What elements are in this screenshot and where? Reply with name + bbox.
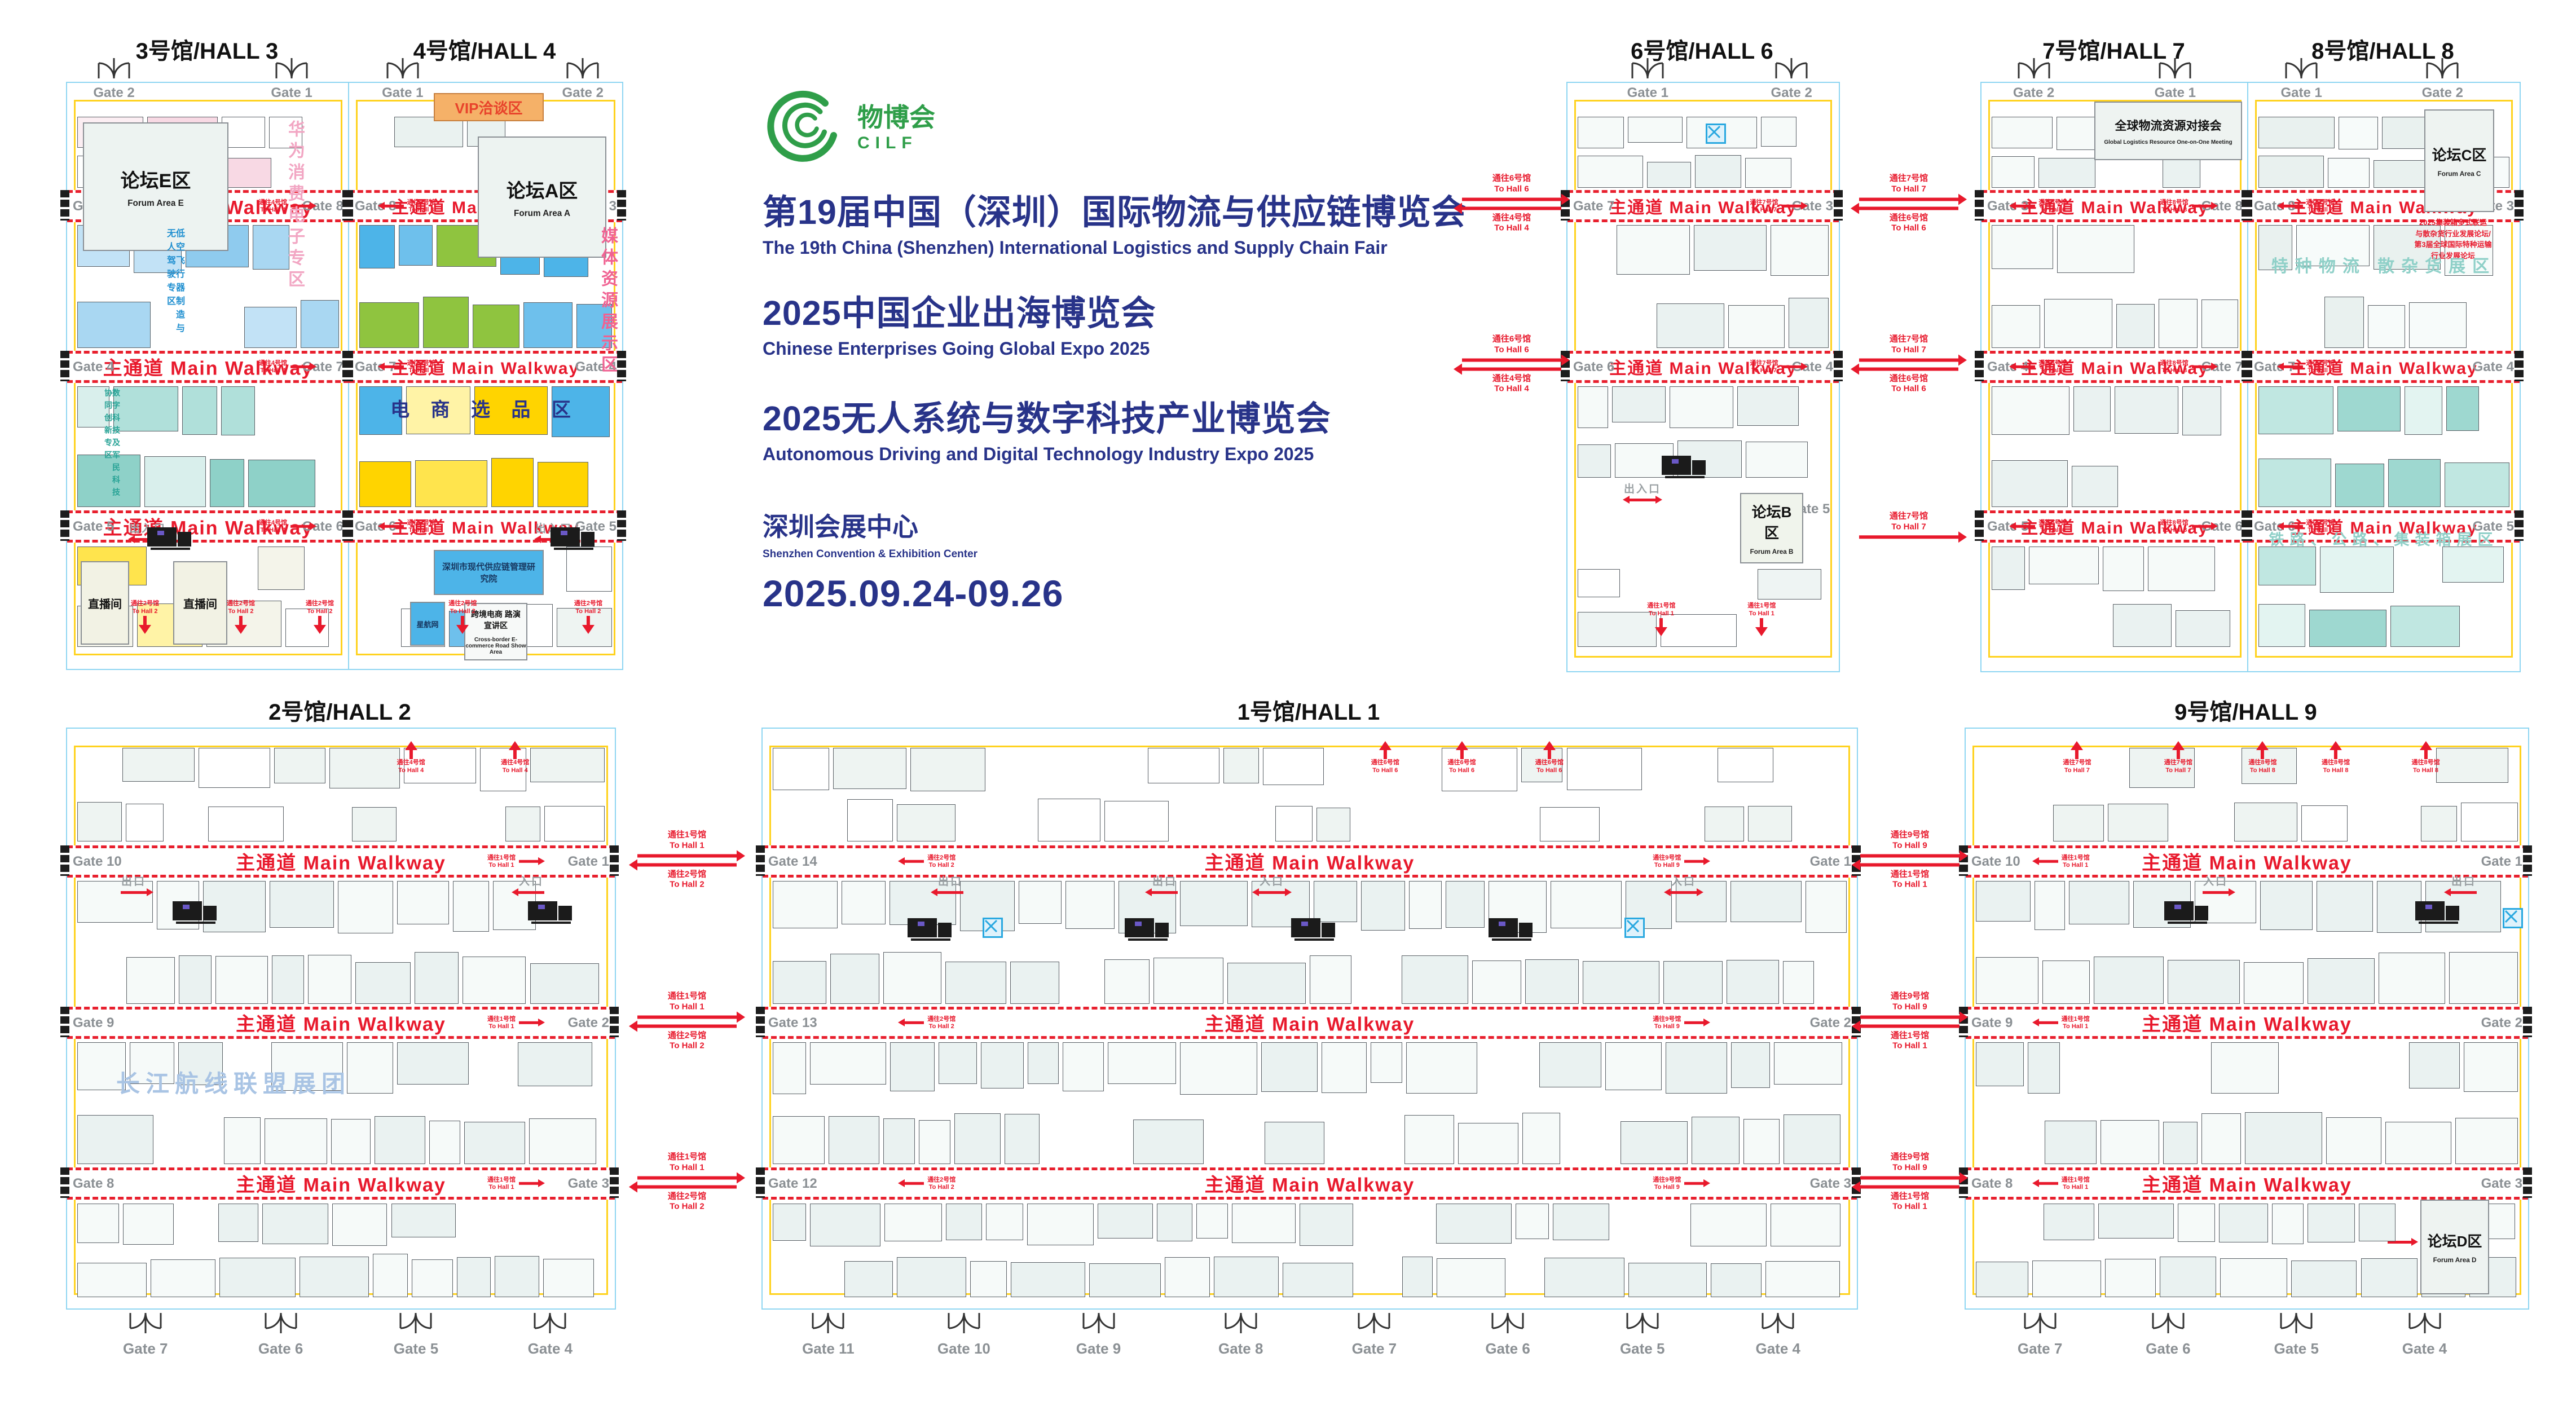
passage-arrow-up: 通往4号馆To Hall 4 bbox=[501, 741, 529, 775]
booth-block bbox=[2461, 803, 2518, 841]
booth-block bbox=[399, 225, 433, 266]
passage-arrow-down: 通往2号馆To Hall 2 bbox=[306, 600, 334, 634]
booth-block bbox=[355, 962, 411, 1004]
booth-block bbox=[301, 300, 339, 348]
side-gate-icon bbox=[610, 1007, 619, 1037]
booth-block bbox=[2445, 462, 2509, 507]
passage-arrow-up-head bbox=[2256, 741, 2269, 750]
zone-label: 论坛E区 bbox=[117, 165, 195, 193]
gate-label-gate7: Gate 7 bbox=[1573, 199, 1614, 214]
side-gate-icon bbox=[2242, 351, 2251, 381]
passage-arrow-up-stem bbox=[1548, 750, 1551, 759]
gate-label-gate4: Gate 4 bbox=[1756, 1340, 1801, 1358]
main-walkway-hall7-1: 主通道 Main WalkwayGate 3Gate 8通往6号馆To Hall… bbox=[1981, 190, 2248, 222]
booth-block bbox=[773, 748, 829, 790]
mark-出口-5: 出口 bbox=[121, 873, 147, 894]
expo2-title-en: Chinese Enterprises Going Global Expo 20… bbox=[763, 338, 1513, 359]
passage-arrow-down-label: 通往1号馆To Hall 1 bbox=[1647, 602, 1675, 618]
truck-icon bbox=[906, 915, 955, 945]
gate-label-gate1: Gate 1 bbox=[2481, 854, 2522, 870]
passage-arrow-up-stem bbox=[2424, 750, 2428, 759]
gate-label-gate2: Gate 2 bbox=[568, 1015, 609, 1031]
booth-block bbox=[1361, 881, 1405, 931]
booth-block bbox=[505, 807, 540, 841]
booth-block bbox=[2317, 881, 2373, 932]
gate-label-gate7: Gate 7 bbox=[1352, 1340, 1397, 1358]
passage-arrow-up-label: 通往8号馆To Hall 8 bbox=[2248, 759, 2276, 775]
booth-block bbox=[2291, 1261, 2357, 1297]
side-gate-icon bbox=[2242, 510, 2251, 541]
side-gate-icon bbox=[610, 1167, 619, 1198]
mark-arrow-icon bbox=[121, 891, 147, 894]
booth-block bbox=[2108, 804, 2168, 841]
side-gate-icon bbox=[1834, 190, 1843, 221]
main-walkway-hall8-2: 主通道 Main WalkwayGate 7Gate 4通往7号馆To Hall… bbox=[2248, 351, 2520, 383]
zone-label: 论坛B区 bbox=[1741, 501, 1802, 543]
booth-block bbox=[113, 386, 178, 431]
gate-label-gate8: Gate 8 bbox=[1218, 1340, 1263, 1358]
booth-block bbox=[2044, 1204, 2095, 1240]
booth-block bbox=[1605, 1042, 1662, 1090]
mark-label: 入口 bbox=[519, 873, 544, 888]
booth-block bbox=[2201, 1113, 2242, 1164]
passage-arrow-down-stem bbox=[239, 616, 243, 625]
booth-block bbox=[179, 955, 212, 1004]
gate-door-icon bbox=[2151, 1312, 2185, 1338]
booth-block bbox=[1583, 961, 1659, 1004]
side-gate-icon bbox=[1975, 351, 1984, 381]
booth-block bbox=[77, 1263, 147, 1297]
truck-icon bbox=[527, 898, 575, 928]
side-gate-icon bbox=[60, 1167, 69, 1198]
booth-block bbox=[1621, 1121, 1687, 1164]
booth-block bbox=[375, 1116, 425, 1164]
side-gate-icon bbox=[60, 351, 69, 381]
walkway-note-right: 通往9号馆To Hall 9 bbox=[1653, 854, 1703, 869]
mark-出入口-2: 出入口 bbox=[1624, 481, 1661, 501]
gate-door-icon bbox=[1357, 1312, 1391, 1338]
gate-label-gate2: Gate 2 bbox=[2013, 85, 2054, 101]
booth-block bbox=[1758, 569, 1821, 600]
walkway-label: 主通道 Main Walkway bbox=[236, 1169, 446, 1197]
hall-connector-2: 通往7号馆To Hall 7通往6号馆To Hall 6 bbox=[1859, 174, 1958, 234]
booth-block bbox=[1038, 799, 1100, 841]
mark-label: 出入口 bbox=[1624, 481, 1661, 496]
booth-block bbox=[1446, 881, 1485, 928]
passage-arrow-up-head bbox=[1379, 741, 1392, 750]
gate-label-gate2: Gate 2 bbox=[1810, 1015, 1851, 1031]
booth-block bbox=[773, 1116, 825, 1164]
booth-block bbox=[1300, 1204, 1353, 1246]
gate-door-icon bbox=[1082, 1312, 1116, 1338]
passage-arrow-down: 通往1号馆To Hall 1 bbox=[1647, 602, 1675, 636]
truck-icon bbox=[146, 524, 195, 554]
booth-block bbox=[2029, 547, 2099, 584]
booth-block bbox=[1705, 807, 1743, 841]
booth-block bbox=[1539, 1042, 1601, 1087]
gate-door-icon bbox=[1626, 1312, 1659, 1338]
booth-block bbox=[2258, 459, 2331, 507]
zone-label: 直播间 bbox=[85, 595, 125, 611]
passage-arrow-down-label: 通往2号馆To Hall 2 bbox=[131, 600, 159, 616]
booth-block bbox=[1761, 117, 1796, 147]
walkway-label: 主通道 Main Walkway bbox=[236, 1008, 446, 1036]
booth-block bbox=[1976, 881, 2031, 922]
gate-label-gate5: Gate 5 bbox=[73, 519, 114, 535]
mark-label: 入口 bbox=[1671, 873, 1696, 888]
fair-title-en: The 19th China (Shenzhen) International … bbox=[763, 237, 1513, 258]
hall-title-hall6: 6号馆/HALL 6 bbox=[1566, 33, 1838, 65]
booth-block bbox=[1196, 1204, 1228, 1239]
side-gate-icon bbox=[617, 510, 626, 541]
booth-block bbox=[122, 748, 195, 782]
zone-label: 全球物流资源对接会 bbox=[2112, 117, 2225, 134]
gate-label-gate4: Gate 4 bbox=[73, 359, 114, 375]
booth-block bbox=[2219, 1204, 2268, 1242]
booth-block bbox=[359, 302, 419, 348]
booth-block bbox=[77, 1115, 153, 1164]
booth-block bbox=[2042, 960, 2090, 1004]
booth-block bbox=[2449, 952, 2518, 1004]
booth-block bbox=[253, 225, 289, 270]
main-walkway-hall1-2: 主通道 Main WalkwayGate 13Gate 2通往2号馆To Hal… bbox=[763, 1007, 1857, 1039]
passage-arrow-up: 通往6号馆To Hall 6 bbox=[1535, 741, 1564, 775]
zone-vtext-hall3-1: 华为消费电子专区 bbox=[286, 120, 303, 363]
booth-block bbox=[2382, 117, 2430, 149]
gate-door-icon bbox=[1761, 1312, 1795, 1338]
booth-block bbox=[300, 1257, 369, 1297]
gate-label-gate2: Gate 2 bbox=[1771, 85, 1812, 101]
booth-block bbox=[272, 955, 304, 1004]
side-gate-icon bbox=[756, 1167, 765, 1198]
zone-htext-hall8-3: 铁路、公路、集装箱展区 bbox=[2260, 527, 2508, 549]
booth-block bbox=[2182, 386, 2221, 435]
passage-arrow-down-label: 通往2号馆To Hall 2 bbox=[574, 600, 602, 616]
booth-block bbox=[2258, 547, 2316, 585]
passage-arrow-down-label: 通往1号馆To Hall 1 bbox=[1747, 602, 1776, 618]
booth-block bbox=[2409, 1042, 2460, 1089]
booth-block bbox=[2328, 158, 2370, 188]
booth-block bbox=[1406, 1042, 1477, 1094]
booth-block bbox=[897, 1257, 966, 1297]
passage-arrow-down: 通往2号馆To Hall 2 bbox=[227, 600, 255, 634]
gate-label-gate7: Gate 7 bbox=[123, 1340, 168, 1358]
booth-block bbox=[423, 297, 469, 348]
walkway-label: 主通道 Main Walkway bbox=[1205, 1169, 1415, 1197]
booth-block bbox=[1992, 460, 2068, 507]
booth-block bbox=[2368, 305, 2405, 348]
gate-label-gate5: Gate 5 bbox=[2274, 1340, 2319, 1358]
walkway-note-right: 通往9号馆To Hall 9 bbox=[1653, 1176, 1703, 1191]
gate-label-gate1: Gate 1 bbox=[2281, 85, 2322, 101]
passage-arrow-up-label: 通往4号馆To Hall 4 bbox=[501, 759, 529, 775]
passage-arrow-up: 通往6号馆To Hall 6 bbox=[1371, 741, 1399, 775]
booth-block bbox=[2211, 1042, 2279, 1094]
booth-block bbox=[1628, 1263, 1707, 1297]
booth-block bbox=[773, 1204, 806, 1241]
gate-label-gate6: Gate 6 bbox=[1573, 359, 1614, 375]
booth-block bbox=[883, 1118, 915, 1164]
gate-label-gate9: Gate 9 bbox=[1076, 1340, 1121, 1358]
booth-block bbox=[1617, 225, 1690, 275]
elevator-icon bbox=[1706, 124, 1726, 144]
booth-block bbox=[218, 1204, 258, 1242]
venue-cn: 深圳会展中心 bbox=[763, 506, 1513, 544]
booth-block bbox=[1663, 961, 1723, 1004]
passage-arrow-up-stem bbox=[513, 750, 517, 759]
gate-label-gate6: Gate 6 bbox=[2146, 1340, 2191, 1358]
hall-title-hall9: 9号馆/HALL 9 bbox=[1965, 694, 2527, 726]
booth-block bbox=[1180, 1042, 1257, 1095]
walkway-note-right: 通往1号馆To Hall 1 bbox=[487, 854, 538, 869]
passage-arrow-down-stem bbox=[1760, 618, 1763, 627]
booth-block bbox=[970, 1261, 1007, 1297]
passage-arrow-down-stem bbox=[587, 616, 590, 625]
booth-block bbox=[1992, 117, 2053, 148]
main-walkway-hall1-3: 主通道 Main WalkwayGate 12Gate 3通往2号馆To Hal… bbox=[763, 1167, 1857, 1200]
passage-arrow-up-label: 通往4号馆To Hall 4 bbox=[397, 759, 425, 775]
booth-block bbox=[1578, 444, 1611, 478]
main-walkway-hall2-2: 主通道 Main WalkwayGate 9Gate 2通往1号馆To Hall… bbox=[67, 1007, 615, 1039]
passage-arrow-up: 通往7号馆To Hall 7 bbox=[2164, 741, 2192, 775]
zone-label: 论坛D区 bbox=[2424, 1230, 2486, 1251]
walkway-note-right: 通往1号馆To Hall 1 bbox=[487, 1176, 538, 1191]
passage-arrow-down-label: 通往2号馆To Hall 2 bbox=[306, 600, 334, 616]
booth-block bbox=[1670, 386, 1734, 428]
mark-arrow-icon bbox=[1259, 891, 1285, 894]
truck-icon bbox=[1290, 915, 1338, 945]
main-walkway-hall9-3: 主通道 Main WalkwayGate 8Gate 3通往1号馆To Hall… bbox=[1966, 1167, 2528, 1200]
booth-block bbox=[1027, 1204, 1094, 1245]
booth-block bbox=[1737, 386, 1799, 426]
booth-block bbox=[2098, 1204, 2174, 1239]
passage-arrow-down-stem bbox=[1659, 618, 1663, 627]
booth-block bbox=[1657, 303, 1724, 348]
booth-block bbox=[2234, 803, 2298, 841]
hall-map-hall9: 主通道 Main WalkwayGate 10Gate 1通往1号馆To Hal… bbox=[1965, 728, 2529, 1310]
booth-block bbox=[1404, 1115, 1454, 1164]
gate-door-icon bbox=[399, 1312, 433, 1338]
mark-label: 出口 bbox=[121, 873, 146, 888]
booth-block bbox=[810, 1204, 880, 1246]
hall-connector-6: 通往1号馆To Hall 1通往2号馆To Hall 2 bbox=[637, 991, 737, 1052]
gate-label-gate2: Gate 2 bbox=[93, 85, 134, 101]
booth-block bbox=[1771, 1204, 1840, 1246]
main-walkway-hall6-1: 主通道 Main WalkwayGate 7Gate 3通往7号馆To Hall… bbox=[1567, 190, 1839, 222]
gate-label-gate13: Gate 13 bbox=[768, 1015, 817, 1031]
gate-label-gate11: Gate 11 bbox=[802, 1340, 855, 1358]
walkway-note-left: 通往6号馆To Hall 6 bbox=[2016, 519, 2067, 534]
hall-map-hall3: 主通道 Main WalkwayGate 3Gate 8通往4号馆To Hall… bbox=[66, 82, 350, 670]
zone-hall3-4: 直播间 bbox=[81, 561, 129, 645]
main-walkway-hall7-2: 主通道 Main WalkwayGate 4Gate 7通往6号馆To Hall… bbox=[1981, 351, 2248, 383]
booth-block bbox=[2260, 881, 2313, 930]
logo-en-text: CILF bbox=[857, 134, 935, 153]
zone-hall3-5: 直播间 bbox=[173, 561, 227, 645]
gate-label-gate10: Gate 10 bbox=[937, 1340, 990, 1358]
passage-arrow-down-label: 通往2号馆To Hall 2 bbox=[227, 600, 255, 616]
gate-door-icon bbox=[1224, 1312, 1258, 1338]
hall-title-hall3: 3号馆/HALL 3 bbox=[66, 33, 348, 65]
mark-label: 出口 bbox=[1152, 873, 1177, 888]
hall-connector-7: 通往1号馆To Hall 1通往2号馆To Hall 2 bbox=[637, 1152, 737, 1213]
booth-block bbox=[2116, 304, 2155, 348]
booth-block bbox=[2163, 158, 2200, 188]
booth-block bbox=[1784, 1114, 1840, 1164]
booth-block bbox=[1690, 1204, 1766, 1246]
booth-block bbox=[2148, 547, 2215, 591]
zone-hall4-1: 论坛A区Forum Area A bbox=[478, 136, 606, 258]
booth-block bbox=[2044, 299, 2112, 348]
walkway-note-left: 通往6号馆To Hall 6 bbox=[2016, 199, 2067, 213]
walkway-note-left: 通往6号馆To Hall 6 bbox=[2016, 359, 2067, 374]
gate-label-gate9: Gate 9 bbox=[1971, 1015, 2013, 1031]
booth-block bbox=[329, 748, 400, 788]
passage-arrow-up-head bbox=[2071, 741, 2083, 750]
booth-block bbox=[2073, 386, 2111, 431]
gate-label-gate7: Gate 7 bbox=[2018, 1340, 2063, 1358]
booth-block bbox=[2390, 606, 2460, 647]
passage-arrow-down-head bbox=[1755, 627, 1768, 636]
booth-block bbox=[1089, 1263, 1161, 1297]
booth-block bbox=[491, 458, 534, 507]
gate-label-gate2: Gate 2 bbox=[2422, 85, 2463, 101]
booth-block bbox=[331, 1119, 370, 1164]
gate-door-icon bbox=[811, 1312, 845, 1338]
booth-block bbox=[2159, 299, 2198, 348]
booth-block bbox=[883, 952, 941, 1004]
booth-block bbox=[529, 1118, 596, 1164]
mark-出口-6: 出口 bbox=[1152, 873, 1178, 894]
elevator-icon bbox=[2503, 908, 2523, 928]
booth-block bbox=[2309, 610, 2387, 647]
booth-block bbox=[2163, 1122, 2197, 1164]
booth-block bbox=[1765, 1261, 1840, 1297]
booth-block bbox=[215, 956, 268, 1004]
booth-block bbox=[1005, 1114, 1040, 1164]
booth-block bbox=[1695, 155, 1741, 188]
passage-arrow-up-stem bbox=[2075, 750, 2079, 759]
booth-block bbox=[2101, 1120, 2159, 1164]
passage-arrow-up: 通往8号馆To Hall 8 bbox=[2411, 741, 2440, 775]
booth-block bbox=[1718, 748, 1773, 782]
passage-arrow-up-stem bbox=[2177, 750, 2180, 759]
side-gate-icon bbox=[342, 190, 351, 221]
hall-connector-1: 通往6号馆To Hall 6通往4号馆To Hall 4 bbox=[1462, 334, 1561, 395]
booth-block bbox=[397, 1042, 469, 1085]
logo-cn-text: 物博会 bbox=[857, 104, 935, 130]
booth-block bbox=[538, 462, 589, 507]
booth-block bbox=[352, 807, 397, 841]
booth-block bbox=[1746, 442, 1808, 478]
booth-block bbox=[359, 461, 411, 507]
booth-block bbox=[1133, 1120, 1204, 1164]
booth-block bbox=[2069, 881, 2129, 924]
booth-block bbox=[1774, 1042, 1842, 1085]
walkway-note-right: 通往7号馆To Hall 7 bbox=[1750, 199, 1801, 213]
booth-block bbox=[530, 963, 599, 1004]
passage-arrow-up-label: 通往6号馆To Hall 6 bbox=[1448, 759, 1476, 775]
booth-block bbox=[1743, 1119, 1780, 1164]
mark-label: 入口 bbox=[1260, 873, 1284, 888]
zone-label: 直播间 bbox=[180, 595, 221, 611]
booth-block bbox=[954, 1113, 1001, 1164]
booth-block bbox=[1666, 1042, 1727, 1094]
booth-block bbox=[884, 1204, 942, 1241]
booth-block bbox=[1647, 162, 1691, 188]
gate-door-icon bbox=[1491, 1312, 1525, 1338]
booth-block bbox=[1436, 1204, 1512, 1244]
passage-arrow-down-head bbox=[582, 625, 595, 634]
booth-block bbox=[144, 456, 206, 507]
booth-block bbox=[338, 881, 393, 933]
hall-title-hall7: 7号馆/HALL 7 bbox=[1980, 33, 2247, 65]
booth-block bbox=[1153, 958, 1223, 1004]
booth-block bbox=[77, 1204, 119, 1243]
truck-icon bbox=[1124, 915, 1172, 945]
booth-block bbox=[910, 748, 985, 791]
truck-icon bbox=[549, 524, 598, 554]
booth-block bbox=[126, 957, 174, 1004]
booth-block bbox=[1692, 1117, 1740, 1164]
booth-block bbox=[308, 955, 351, 1004]
booth-block bbox=[543, 1259, 594, 1297]
booth-block bbox=[412, 1259, 453, 1297]
gate-label-gate6: Gate 6 bbox=[1485, 1340, 1530, 1358]
booth-block bbox=[1232, 1204, 1296, 1243]
mark-label: 入口 bbox=[2203, 873, 2228, 888]
booth-block bbox=[981, 1042, 1024, 1089]
booth-block bbox=[1322, 1042, 1367, 1093]
gate-label-gate5: Gate 5 bbox=[394, 1340, 439, 1358]
booth-block bbox=[1748, 806, 1792, 841]
walkway-note-right: 通往9号馆To Hall 9 bbox=[1653, 1015, 1703, 1030]
expo2-title-cn: 2025中国企业出海博览会 bbox=[763, 293, 1513, 333]
side-gate-icon bbox=[2515, 510, 2524, 541]
booth-block bbox=[773, 881, 838, 928]
mark-入口-6: 入口 bbox=[1259, 873, 1285, 894]
booth-block bbox=[2326, 1117, 2381, 1164]
booth-block bbox=[1516, 1204, 1549, 1239]
booth-block bbox=[945, 962, 1007, 1004]
zone-sublabel: Forum Area D bbox=[2433, 1257, 2477, 1264]
booth-block bbox=[2308, 958, 2375, 1004]
booth-block bbox=[397, 881, 449, 924]
booth-block bbox=[1227, 963, 1306, 1004]
booth-block bbox=[2385, 1122, 2451, 1164]
hall-map-hall1: 主通道 Main WalkwayGate 14Gate 1通往2号馆To Hal… bbox=[761, 728, 1858, 1310]
passage-arrow-up: 通往6号馆To Hall 6 bbox=[1448, 741, 1476, 775]
venue-en: Shenzhen Convention & Exhibition Center bbox=[763, 548, 1513, 561]
booth-block bbox=[2113, 604, 2172, 647]
gate-label-gate3: Gate 3 bbox=[2481, 1176, 2522, 1192]
passage-arrow-up-label: 通往8号馆To Hall 8 bbox=[2322, 759, 2350, 775]
passage-arrow-up-label: 通往7号馆To Hall 7 bbox=[2063, 759, 2091, 775]
walkway-note-left: 通往3号馆To Hall 3 bbox=[385, 519, 435, 534]
zone-sublabel: Forum Area E bbox=[127, 199, 184, 209]
expo3-title-en: Autonomous Driving and Digital Technolog… bbox=[763, 444, 1513, 465]
side-gate-icon bbox=[342, 510, 351, 541]
passage-arrow-down-head bbox=[139, 625, 151, 634]
booth-block bbox=[1628, 117, 1683, 143]
booth-block bbox=[2201, 299, 2238, 348]
zone-vtext-hall3-3: 数字科技及军民科技协同创新专区 bbox=[104, 389, 120, 505]
booth-block bbox=[2057, 225, 2134, 273]
zone-sublabel: Forum Area C bbox=[2438, 170, 2481, 178]
booth-block bbox=[1371, 1042, 1402, 1083]
booth-block bbox=[2335, 464, 2384, 507]
booth-block bbox=[2339, 117, 2378, 149]
